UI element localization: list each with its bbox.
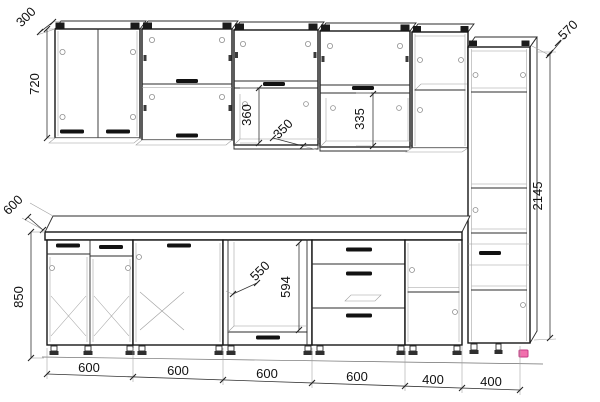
dim-label-300: 300 xyxy=(13,4,39,30)
dim-label-600-depth: 600 xyxy=(0,192,26,218)
hanger-bracket-icon xyxy=(413,26,421,32)
dim-label-2145: 2145 xyxy=(530,182,545,211)
leg xyxy=(50,346,59,355)
hanger-bracket-icon xyxy=(223,23,232,29)
door-handle xyxy=(106,130,130,134)
hanger-bracket-icon xyxy=(131,23,140,29)
dim-label-width-6: 400 xyxy=(480,374,502,389)
base-cabinet-single-door xyxy=(133,240,223,345)
door-handle xyxy=(479,251,501,255)
hanger-bracket-icon xyxy=(469,41,477,47)
leg xyxy=(453,346,462,355)
door-handle xyxy=(167,244,191,248)
leg xyxy=(215,346,224,355)
drawer-handle xyxy=(56,244,80,248)
drawing-canvas: 360 350 335 xyxy=(0,0,600,402)
door-handle xyxy=(176,79,198,83)
leg xyxy=(316,346,325,355)
dim-label-570: 570 xyxy=(555,17,581,43)
dim-label-width-1: 600 xyxy=(78,360,100,375)
dim-wall-depth-300: 300 xyxy=(13,4,61,35)
hanger-bracket-icon xyxy=(321,25,330,31)
drawer-handle xyxy=(346,272,372,276)
tall-pantry-cabinet xyxy=(468,37,537,357)
hanger-bracket-icon xyxy=(522,41,530,47)
dim-label-width-4: 600 xyxy=(346,369,368,384)
dim-base-height-850: 850 xyxy=(11,229,45,361)
leg xyxy=(304,346,313,355)
hanger-bracket-icon xyxy=(56,23,65,29)
dim-label-850: 850 xyxy=(11,286,26,308)
leg xyxy=(227,346,236,355)
wall-cabinet-open-niche-right xyxy=(320,23,416,151)
drawer-handle xyxy=(256,336,280,340)
dim-tall-height-2145: 2145 xyxy=(530,50,556,341)
drawer-handle xyxy=(346,248,372,252)
leg xyxy=(138,346,147,355)
leg xyxy=(397,346,406,355)
hanger-bracket-icon xyxy=(309,24,318,30)
countertop xyxy=(45,216,470,240)
dim-chain-module-widths: 600 600 600 600 400 400 xyxy=(44,346,523,395)
door-handle xyxy=(60,130,84,134)
dim-label-594: 594 xyxy=(278,276,293,298)
door-handle xyxy=(352,86,374,90)
kitchen-technical-drawing: 360 350 335 xyxy=(0,0,600,402)
leg xyxy=(409,346,418,355)
cabinet-legs xyxy=(42,346,543,364)
leg xyxy=(84,346,93,355)
wall-cabinet-flip-doors xyxy=(136,21,238,145)
dim-label-335: 335 xyxy=(352,108,367,130)
hanger-bracket-icon xyxy=(143,23,152,29)
dim-label-width-5: 400 xyxy=(422,372,444,387)
hanger-bracket-icon xyxy=(235,24,244,30)
drawer-handle xyxy=(99,245,123,249)
dim-label-720: 720 xyxy=(27,73,42,95)
base-cabinet-three-drawers xyxy=(312,240,405,345)
pink-highlight-marker xyxy=(519,350,528,357)
dim-wall-height-720: 720 xyxy=(27,26,55,141)
dim-label-width-2: 600 xyxy=(167,363,189,378)
wall-cabinet-open-shelf xyxy=(406,24,474,152)
base-cabinet-drawers-doors xyxy=(47,240,133,345)
drawer-handle xyxy=(346,314,372,318)
door-handle xyxy=(263,82,285,86)
dim-worktop-depth-600: 600 xyxy=(0,192,53,233)
dim-label-width-3: 600 xyxy=(256,366,278,381)
dim-label-360: 360 xyxy=(239,104,254,126)
floor-line xyxy=(42,357,543,364)
wall-cabinet-double-door xyxy=(49,21,146,143)
door-handle xyxy=(176,134,198,138)
base-cabinet-open-shelf xyxy=(405,240,462,345)
hanger-bracket-icon xyxy=(401,25,410,31)
hanger-bracket-icon xyxy=(461,26,469,32)
